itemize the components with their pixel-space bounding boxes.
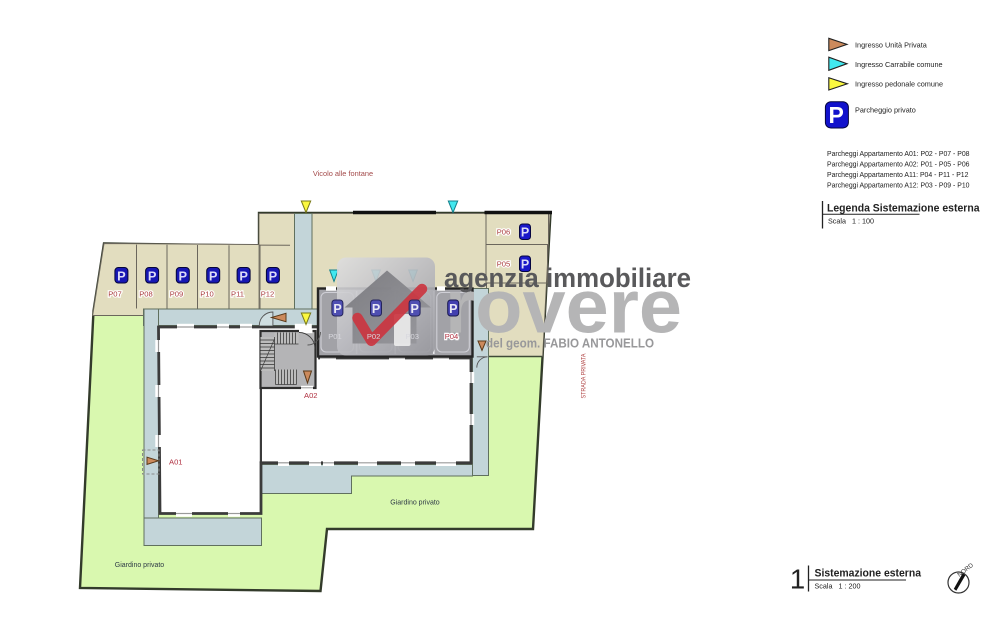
svg-text:P01: P01 (328, 332, 342, 341)
svg-text:A02: A02 (304, 391, 318, 400)
svg-text:STRADA PRIVATA: STRADA PRIVATA (581, 353, 588, 399)
svg-text:P08: P08 (139, 290, 153, 299)
svg-text:P02: P02 (367, 332, 381, 341)
svg-text:P03: P03 (405, 332, 419, 341)
svg-text:P05: P05 (497, 260, 511, 269)
svg-text:P: P (117, 268, 126, 283)
svg-text:P09: P09 (170, 290, 184, 299)
svg-text:P: P (179, 268, 188, 283)
svg-text:P: P (521, 258, 529, 272)
svg-text:Ingresso Unità Privata: Ingresso Unità Privata (855, 40, 928, 49)
svg-text:P: P (239, 268, 248, 283)
svg-text:Parcheggio privato: Parcheggio privato (855, 106, 916, 115)
svg-text:P: P (209, 268, 218, 283)
svg-text:P: P (521, 226, 529, 240)
svg-text:P06: P06 (497, 228, 511, 237)
svg-text:P07: P07 (108, 290, 122, 299)
svg-text:P: P (269, 268, 278, 283)
svg-text:Parcheggi Appartamento A01: P0: Parcheggi Appartamento A01: P02 - P07 - … (827, 151, 970, 158)
svg-text:Ingresso Carrabile comune: Ingresso Carrabile comune (855, 60, 943, 69)
svg-text:P: P (411, 302, 419, 316)
svg-text:Ingresso pedonale comune: Ingresso pedonale comune (855, 79, 943, 88)
svg-text:P: P (372, 302, 380, 316)
svg-text:Parcheggi Appartamento A12: P0: Parcheggi Appartamento A12: P03 - P09 - … (827, 182, 970, 189)
svg-text:del geom. FABIO ANTONELLO: del geom. FABIO ANTONELLO (486, 336, 654, 351)
svg-text:P04: P04 (445, 332, 459, 341)
svg-text:P11: P11 (231, 290, 244, 299)
svg-text:Giardino privato: Giardino privato (390, 500, 440, 507)
svg-text:Vicolo alle fontane: Vicolo alle fontane (313, 169, 373, 178)
svg-text:1: 1 (790, 564, 805, 595)
svg-text:A01: A01 (169, 457, 183, 466)
svg-text:Scala 1 : 100: Scala 1 : 100 (828, 217, 874, 226)
svg-text:P: P (449, 302, 457, 316)
svg-text:Parcheggi Appartamento A02: P0: Parcheggi Appartamento A02: P01 - P05 - … (827, 161, 970, 168)
svg-text:P: P (148, 268, 157, 283)
svg-text:P: P (333, 302, 341, 316)
svg-text:P12: P12 (261, 290, 275, 299)
svg-text:P: P (829, 102, 844, 128)
svg-text:Giardino privato: Giardino privato (115, 562, 165, 569)
svg-text:P10: P10 (200, 290, 214, 299)
svg-text:Legenda Sistemazione esterna: Legenda Sistemazione esterna (827, 203, 980, 215)
svg-text:Parcheggi Appartamento A11: P0: Parcheggi Appartamento A11: P04 - P11 - … (827, 172, 969, 179)
svg-text:Sistemazione esterna: Sistemazione esterna (815, 568, 922, 580)
svg-text:Scala 1 : 200: Scala 1 : 200 (815, 582, 861, 591)
